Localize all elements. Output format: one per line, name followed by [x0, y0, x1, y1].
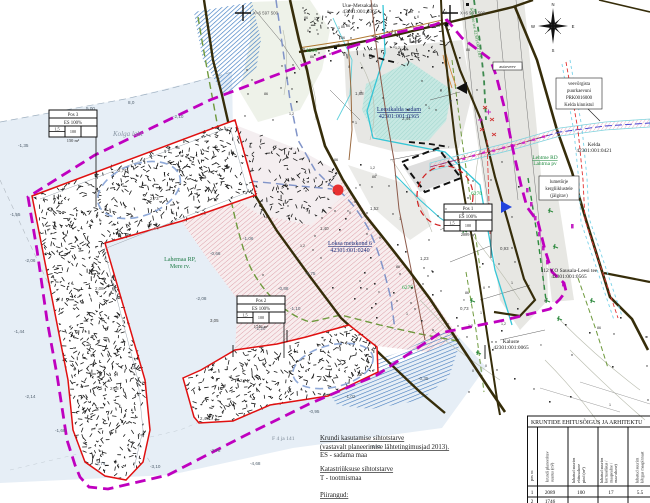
- svg-text:-1,44: -1,44: [14, 329, 25, 334]
- svg-text:-1,06: -1,06: [243, 236, 254, 241]
- svg-text:0,93: 0,93: [500, 246, 509, 251]
- svg-text:II: II: [348, 65, 350, 69]
- svg-text:1,23: 1,23: [420, 256, 429, 261]
- svg-text:1,2: 1,2: [289, 112, 294, 116]
- svg-text:E: E: [572, 24, 575, 29]
- svg-text:1: 1: [344, 13, 346, 17]
- svg-text:II: II: [417, 15, 419, 19]
- svg-text:1746 m²: 1746 m²: [254, 324, 269, 329]
- svg-text:42301:001:0065: 42301:001:0065: [493, 345, 529, 351]
- svg-text:1: 1: [360, 90, 362, 94]
- svg-text:1,2: 1,2: [501, 322, 506, 326]
- svg-text:II: II: [349, 211, 351, 215]
- svg-text:x: x: [447, 322, 449, 326]
- svg-text:-0,75: -0,75: [305, 271, 316, 276]
- svg-text:100: 100: [577, 490, 585, 496]
- svg-text:100: 100: [465, 223, 471, 228]
- svg-text:86: 86: [264, 92, 268, 96]
- svg-text:(vastavalt planeerimise lähtet: (vastavalt planeerimise lähtetingimusjad…: [320, 444, 449, 451]
- svg-text:-2,14: -2,14: [25, 394, 36, 399]
- svg-text:autoveev: autoveev: [499, 64, 516, 69]
- svg-text:Lahemaa RP,: Lahemaa RP,: [164, 257, 196, 263]
- svg-text:puurkaevuni: puurkaevuni: [567, 89, 592, 94]
- svg-text:II: II: [485, 364, 487, 368]
- svg-text:1: 1: [428, 106, 430, 110]
- svg-text:T - tootmismaa: T - tootmismaa: [320, 475, 361, 482]
- svg-text:kõrgus maapinnast: kõrgus maapinnast: [639, 451, 644, 483]
- svg-text:Pos 3: Pos 3: [68, 113, 79, 118]
- svg-text:150 m²: 150 m²: [67, 138, 80, 143]
- svg-text:86: 86: [436, 24, 440, 28]
- svg-text:II: II: [472, 369, 474, 373]
- svg-text:II: II: [327, 10, 329, 14]
- svg-text:1: 1: [406, 312, 408, 316]
- svg-text:kergliiklustele: kergliiklustele: [545, 187, 572, 192]
- svg-text:86: 86: [466, 48, 470, 52]
- svg-text:-0,66: -0,66: [210, 251, 221, 256]
- svg-text:86: 86: [341, 36, 345, 40]
- svg-text:pind (m²): pind (m²): [581, 467, 586, 483]
- svg-text:x: x: [393, 45, 395, 49]
- svg-text:2,49: 2,49: [200, 416, 209, 421]
- svg-text:x: x: [540, 343, 542, 347]
- svg-text:1,52: 1,52: [370, 206, 379, 211]
- svg-text:F 4 ja 141: F 4 ja 141: [272, 436, 295, 442]
- svg-text:1: 1: [355, 121, 357, 125]
- svg-text:ES 100%: ES 100%: [252, 307, 270, 312]
- svg-text:(jälgitav): (jälgitav): [550, 194, 568, 199]
- svg-text:42301:001:0240: 42301:001:0240: [330, 248, 369, 254]
- svg-text:x: x: [445, 207, 447, 211]
- svg-text:PRK0016000: PRK0016000: [566, 96, 593, 101]
- svg-text:1,2: 1,2: [468, 324, 473, 328]
- svg-text:86: 86: [465, 291, 469, 295]
- svg-text:-1,10: -1,10: [290, 306, 301, 311]
- svg-text:x: x: [378, 290, 380, 294]
- svg-text:maa-alune): maa-alune): [613, 464, 618, 483]
- svg-text:2,73: 2,73: [150, 196, 159, 201]
- svg-text:1,2: 1,2: [370, 166, 375, 170]
- svg-text:86: 86: [334, 158, 338, 162]
- svg-text:0,73: 0,73: [460, 306, 469, 311]
- svg-text:1: 1: [609, 403, 611, 407]
- svg-text:Kelda kinnistul: Kelda kinnistul: [564, 103, 594, 108]
- svg-text:1746: 1746: [545, 499, 556, 503]
- svg-text:X=6 597 500: X=6 597 500: [253, 11, 279, 16]
- svg-text:100: 100: [258, 315, 264, 320]
- svg-text:1: 1: [281, 186, 283, 190]
- svg-text:-3,10: -3,10: [150, 464, 161, 469]
- svg-text:-2,78: -2,78: [210, 448, 221, 453]
- svg-text:x: x: [418, 10, 420, 14]
- svg-text:Leesikalda sadam: Leesikalda sadam: [377, 106, 421, 113]
- svg-text:1: 1: [314, 17, 316, 21]
- svg-text:100: 100: [70, 129, 76, 134]
- svg-text:-2,74: -2,74: [95, 461, 106, 466]
- svg-text:x: x: [369, 24, 371, 28]
- svg-text:8,0: 8,0: [128, 100, 135, 105]
- svg-text:Piirangud:: Piirangud:: [320, 492, 348, 499]
- svg-text:-0,35: -0,35: [418, 376, 429, 381]
- svg-text:1: 1: [480, 311, 482, 315]
- svg-text:17: 17: [608, 490, 614, 496]
- svg-text:suurus (m²): suurus (m²): [549, 462, 554, 482]
- svg-text:86: 86: [341, 25, 345, 29]
- svg-text:1: 1: [442, 152, 444, 156]
- svg-text:veevõrgista: veevõrgista: [568, 82, 591, 87]
- svg-text:-0,88: -0,88: [278, 286, 289, 291]
- svg-text:2,08: 2,08: [95, 286, 104, 291]
- svg-text:2089: 2089: [545, 490, 556, 496]
- svg-text:-1,68: -1,68: [55, 428, 66, 433]
- svg-text:Loksa metskond 6: Loksa metskond 6: [328, 241, 372, 247]
- svg-text:1,2: 1,2: [395, 46, 400, 50]
- svg-text:1,2: 1,2: [442, 11, 447, 15]
- svg-text:Pos 1: Pos 1: [463, 207, 474, 212]
- svg-text:Mere rv.: Mere rv.: [170, 264, 191, 270]
- svg-text:II: II: [544, 299, 546, 303]
- svg-text:1: 1: [399, 217, 401, 221]
- svg-text:42301:001:0421: 42301:001:0421: [576, 148, 612, 154]
- svg-text:-2,08: -2,08: [196, 296, 207, 301]
- svg-text:-1,55: -1,55: [10, 212, 21, 217]
- svg-text:N: N: [551, 2, 554, 7]
- svg-text:-4,68: -4,68: [250, 461, 261, 466]
- svg-text:II: II: [462, 212, 464, 216]
- svg-text:x: x: [463, 298, 465, 302]
- svg-text:lumetõrje: lumetõrje: [550, 180, 568, 185]
- svg-text:W: W: [531, 24, 535, 29]
- svg-text:-2,06: -2,06: [25, 258, 36, 263]
- svg-text:x: x: [527, 313, 529, 317]
- svg-text:1: 1: [375, 173, 377, 177]
- svg-text:-0,95: -0,95: [309, 409, 320, 414]
- svg-text:1,40: 1,40: [320, 226, 329, 231]
- svg-text:x: x: [316, 28, 318, 32]
- svg-text:II: II: [483, 286, 485, 290]
- svg-text:2089 m²: 2089 m²: [461, 232, 476, 237]
- svg-text:1200: 1200: [306, 48, 317, 54]
- svg-text:5.5: 5.5: [637, 490, 644, 496]
- svg-text:86: 86: [597, 326, 601, 330]
- svg-text:ES - sadama maa: ES - sadama maa: [320, 452, 367, 459]
- svg-text:ES 100%: ES 100%: [64, 121, 82, 126]
- svg-text:KRUNTIDE EHITUSÕIGUS JA ARHITE: KRUNTIDE EHITUSÕIGUS JA ARHITEKTU: [531, 418, 643, 426]
- svg-text:86: 86: [310, 55, 314, 59]
- svg-text:Pos 2: Pos 2: [256, 299, 267, 304]
- svg-text:Lahtrna pv: Lahtrna pv: [533, 161, 557, 167]
- svg-text:42301:001:0565: 42301:001:0565: [551, 274, 587, 280]
- svg-text:pos nr.: pos nr.: [529, 470, 534, 481]
- svg-text:1: 1: [531, 490, 534, 496]
- svg-text:1: 1: [511, 281, 513, 285]
- svg-text:x: x: [440, 89, 442, 93]
- svg-text:-1,35: -1,35: [18, 143, 29, 148]
- svg-text:Kolga laht: Kolga laht: [112, 130, 144, 138]
- svg-text:1: 1: [338, 26, 340, 30]
- svg-text:2,77: 2,77: [118, 168, 127, 173]
- svg-text:II: II: [307, 29, 309, 33]
- svg-text:2,18: 2,18: [110, 386, 119, 391]
- svg-text:43011:001:0365: 43011:001:0365: [342, 9, 377, 15]
- svg-text:S: S: [552, 48, 555, 53]
- svg-text:II: II: [286, 76, 288, 80]
- svg-text:2: 2: [531, 499, 534, 503]
- svg-text:2,74: 2,74: [240, 378, 249, 383]
- svg-text:86: 86: [396, 265, 400, 269]
- svg-text:x: x: [347, 209, 349, 213]
- svg-text:6270: 6270: [471, 191, 482, 197]
- svg-text:x: x: [330, 18, 332, 22]
- svg-text:1,2: 1,2: [300, 244, 305, 248]
- svg-text:42301:001:0365: 42301:001:0365: [379, 113, 420, 120]
- svg-text:-2,10: -2,10: [173, 114, 184, 119]
- svg-text:Krundi kasutamise sihtotstarve: Krundi kasutamise sihtotstarve: [320, 435, 404, 442]
- svg-text:-1,02: -1,02: [345, 394, 356, 399]
- svg-text:x: x: [355, 186, 357, 190]
- svg-text:3,05: 3,05: [210, 318, 219, 323]
- svg-text:Katastriüksuse sihtotstarve: Katastriüksuse sihtotstarve: [320, 466, 393, 473]
- svg-text:86: 86: [346, 24, 350, 28]
